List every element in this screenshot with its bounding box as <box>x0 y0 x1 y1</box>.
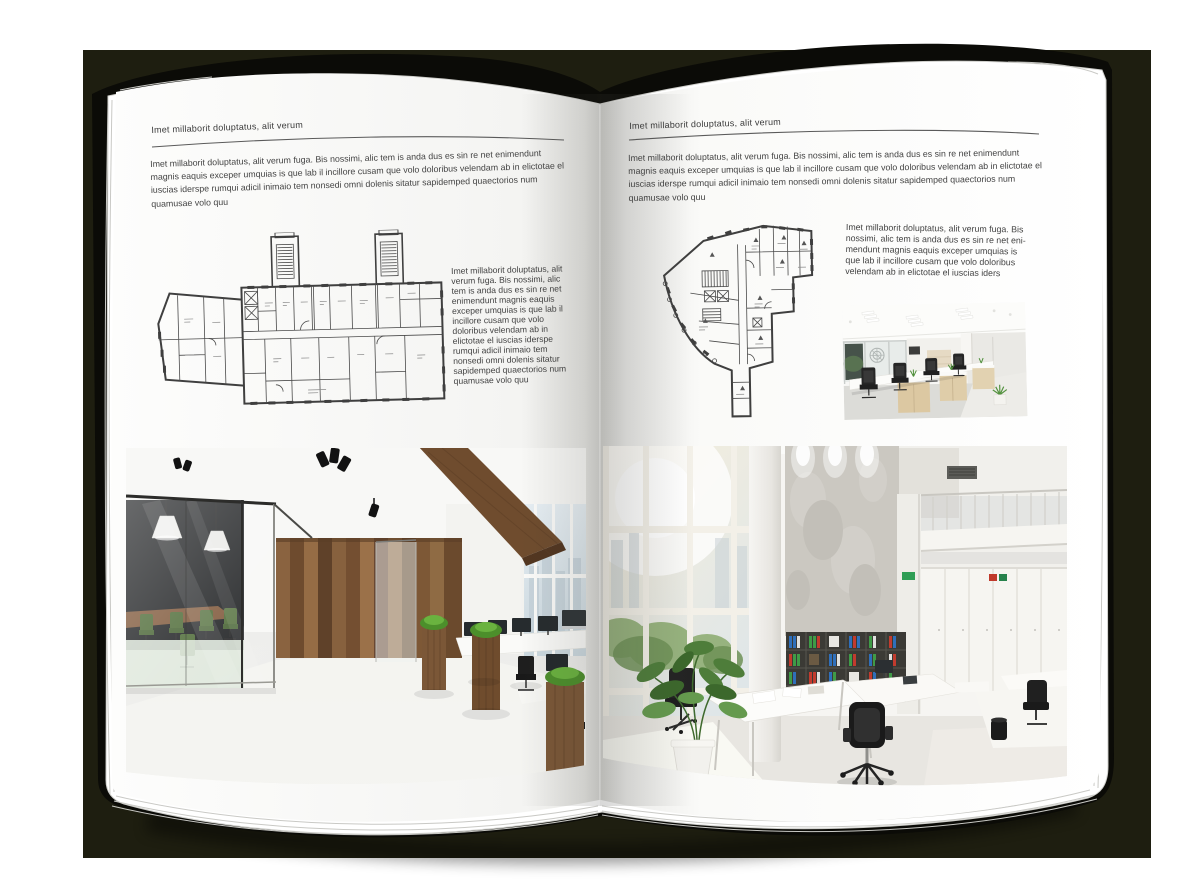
right-body-paragraph: Imet millaborit doluptatus, alit verum f… <box>628 146 1047 205</box>
green-sign <box>999 574 1007 581</box>
plant-pot <box>673 744 713 782</box>
window-ticks <box>158 282 444 405</box>
small-office-photo <box>842 302 1027 420</box>
right-floor-plan <box>641 211 845 424</box>
plan-labels <box>184 293 426 396</box>
red-sign <box>989 574 997 581</box>
glass-partition <box>376 540 416 662</box>
left-floor-plan <box>152 228 449 424</box>
exit-sign <box>902 572 915 580</box>
right-office-photo <box>603 440 1067 792</box>
right-side-text: Imet millaborit doluptatus, alit verum f… <box>845 222 1027 280</box>
mezzanine <box>899 440 1067 568</box>
left-side-text: Imet millaborit doluptatus, alit verum f… <box>451 263 568 386</box>
left-office-photo <box>126 446 586 790</box>
waste-bin <box>991 720 1007 740</box>
concrete-wall <box>785 440 899 636</box>
magazine-mockup: Imet millaborit doluptatus, alit verum I… <box>0 0 1200 891</box>
right-header-rule <box>627 128 1043 146</box>
